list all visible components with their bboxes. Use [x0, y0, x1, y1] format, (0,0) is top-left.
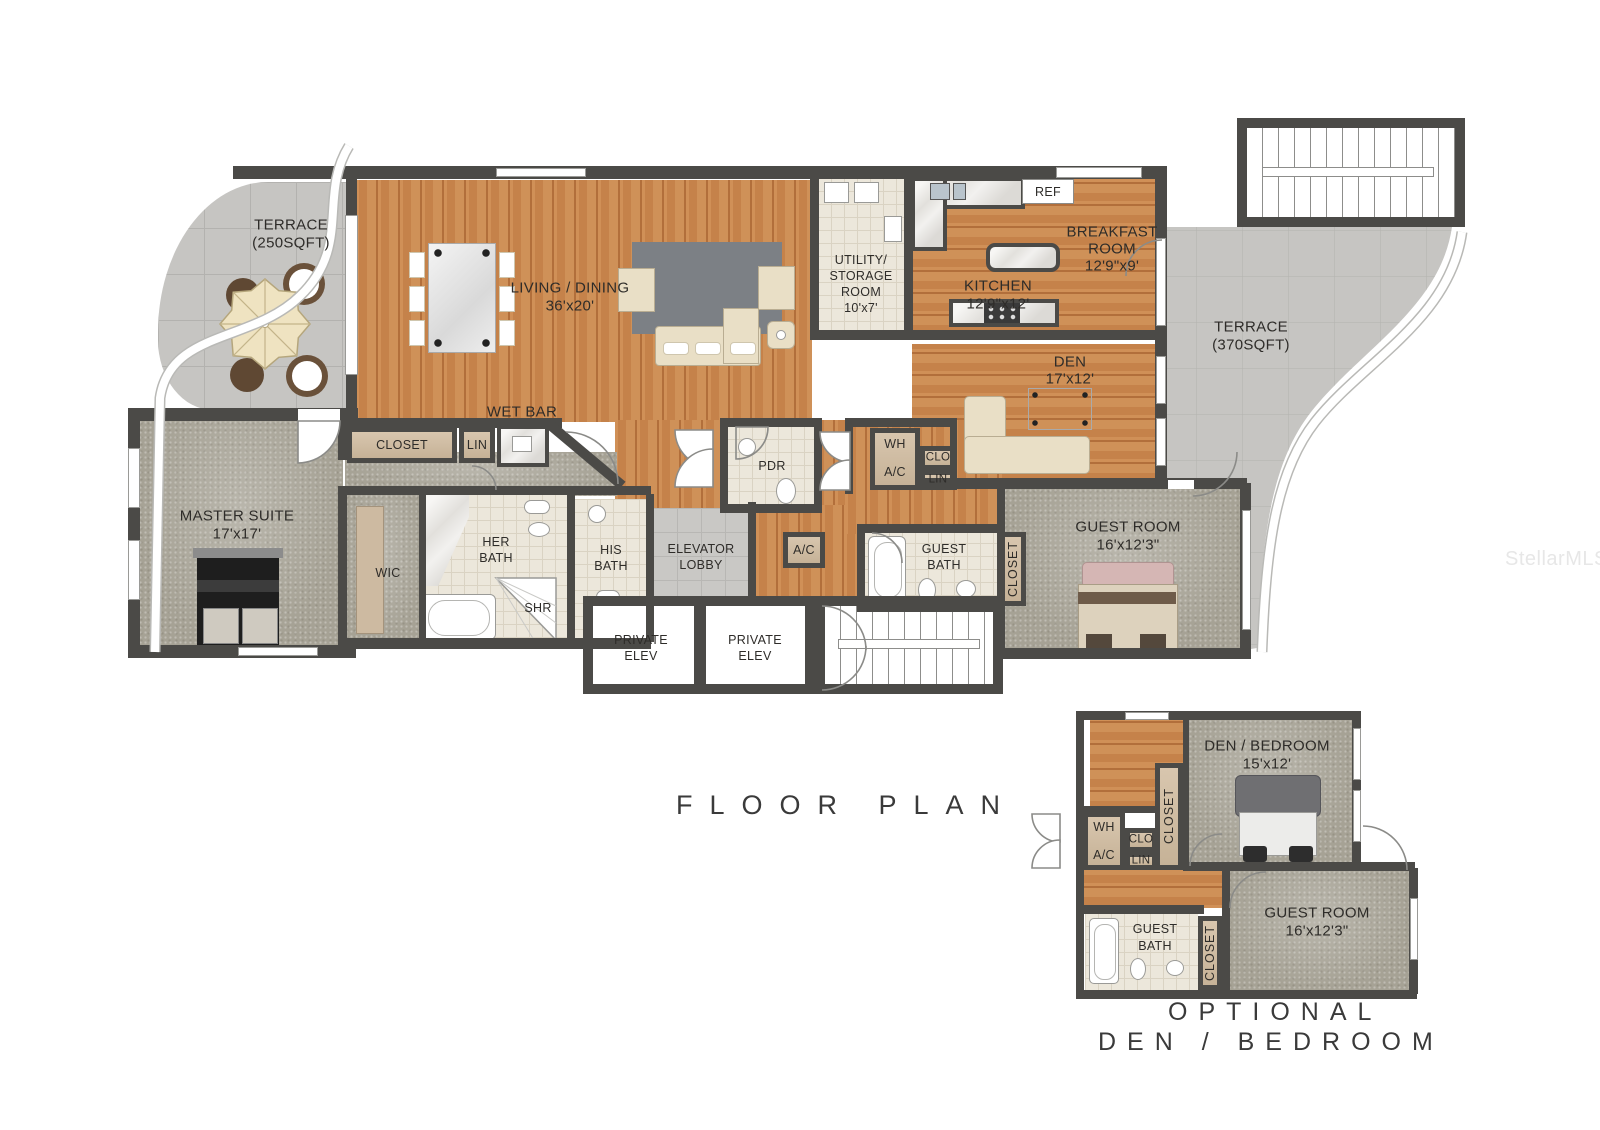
guest-room-size: 16'x12'3": [1097, 536, 1160, 553]
terrace-right-size: (370SQFT): [1212, 336, 1290, 353]
ac-lobby-label: A/C: [793, 543, 815, 557]
opt-wall-bath-right: [1222, 868, 1230, 992]
ac-label: A/C: [884, 465, 906, 479]
kitchen-island: [986, 243, 1060, 272]
kitchen-label: KITCHEN: [964, 277, 1032, 294]
ref-label: REF: [1035, 185, 1061, 199]
master-suite-size: 17'x17': [213, 525, 262, 542]
den-label: DEN: [1054, 353, 1087, 370]
opt-wall-wh-top: [1082, 806, 1160, 813]
window: [1156, 238, 1166, 326]
wall-living-utility: [810, 176, 819, 332]
opt-bed-foot: [1243, 846, 1267, 862]
armchair-right: [758, 266, 795, 310]
elevator-lobby-label-1: ELEVATOR: [667, 542, 734, 556]
window: [1242, 510, 1251, 630]
wall-utility-bottom: [810, 330, 1155, 340]
utility-label-1: UTILITY/: [835, 253, 887, 267]
window: [1156, 418, 1166, 466]
his-bath-label-2: BATH: [594, 559, 628, 573]
breakfast-label-2: ROOM: [1088, 240, 1136, 257]
dryer-icon: [854, 182, 879, 203]
opt-wall-den-left: [1183, 719, 1189, 865]
floor-plan-canvas: TERRACE (250SQFT) LIVING / DINING 36'x20…: [0, 0, 1600, 1130]
opt-clo-label: CLO: [1129, 833, 1154, 846]
opt-bed-pillows: [1235, 775, 1321, 817]
opt-closet-top-label: CLOSET: [1162, 788, 1176, 844]
sofa-pillow: [663, 342, 689, 355]
breakfast-size: 12'9"x9': [1085, 257, 1139, 274]
opt-guest-room-label: GUEST ROOM: [1264, 904, 1369, 921]
opt-wall-den-bottom: [1183, 862, 1415, 871]
wall-master-wic: [338, 486, 347, 649]
staircase-top-right-rail: [1262, 167, 1434, 177]
terrace-right-label: TERRACE: [1214, 318, 1288, 335]
window: [1353, 790, 1361, 842]
window: [1056, 167, 1142, 178]
opt-lin-label: LIN: [1132, 854, 1151, 867]
window: [1125, 712, 1169, 720]
washer-icon: [824, 182, 849, 203]
kitchen-sink-icon: [930, 183, 950, 200]
wall-pdr-right: [814, 418, 822, 513]
utility-label-3: ROOM: [841, 285, 881, 299]
opt-guest-room-size: 16'x12'3": [1286, 922, 1349, 939]
floor-plan-title: FLOOR PLAN: [676, 790, 1017, 821]
opt-bed-foot: [1289, 846, 1313, 862]
wall-terrace-living-stub: [346, 179, 357, 215]
guest-bath-label-2: BATH: [927, 558, 961, 572]
wh-label: WH: [884, 437, 905, 451]
her-bath-label-2: BATH: [479, 551, 513, 565]
master-bed-pillow: [203, 608, 239, 644]
opt-guest-bath-label-2: BATH: [1138, 939, 1172, 953]
window: [1410, 898, 1418, 960]
terrace-left-label: TERRACE: [254, 216, 328, 233]
pdr-label: PDR: [758, 459, 785, 473]
optional-title-line2: DEN / BEDROOM: [1098, 1028, 1444, 1057]
opt-guest-bath-label-1: GUEST: [1133, 922, 1178, 936]
private-elev-left-label-1: PRIVATE: [614, 633, 668, 647]
elevator-divider-wall: [694, 606, 706, 684]
wall-clo-right: [950, 427, 957, 490]
dining-chair: [499, 252, 515, 278]
utility-sink-icon: [884, 216, 902, 242]
shr-label: SHR: [524, 601, 551, 615]
wall-her-his-bath: [567, 494, 575, 642]
wall-pdr-top: [720, 418, 822, 427]
wall-hall-bath-top: [338, 486, 651, 495]
wall-guestbath-top: [857, 524, 1005, 533]
wet-bar-sink-icon: [512, 436, 532, 452]
window: [345, 215, 358, 375]
dining-chair: [409, 320, 425, 346]
master-suite-label: MASTER SUITE: [180, 507, 294, 524]
her-bath-label-1: HER: [482, 535, 509, 549]
umbrella-icon: [218, 277, 312, 371]
master-bed-headboard: [193, 548, 283, 558]
wall-wh-top: [845, 418, 957, 427]
window: [1156, 356, 1166, 404]
wall-master-left: [128, 408, 140, 658]
pdr-toilet-icon: [776, 478, 796, 504]
door-gap: [298, 409, 340, 421]
optional-title-line1: OPTIONAL: [1168, 998, 1382, 1027]
dining-table-corner-dots: [434, 249, 490, 347]
sofa-pillow: [695, 342, 721, 355]
private-elev-left-label-2: ELEV: [624, 649, 657, 663]
terrace-left-size: (250SQFT): [252, 234, 330, 251]
kitchen-sink-icon-2: [953, 183, 966, 200]
wall-guestbath-bottom: [857, 604, 1005, 612]
side-table-dot: [776, 330, 786, 340]
wic-label: WIC: [375, 566, 400, 580]
wall-lobby-right: [748, 502, 756, 598]
his-sink-icon: [588, 505, 606, 523]
dining-chair: [409, 252, 425, 278]
opt-hall-wood-bottom: [1083, 868, 1227, 908]
living-dining-label: LIVING / DINING: [511, 279, 630, 296]
opt-den-bedroom-size: 15'x12': [1243, 755, 1292, 772]
kitchen-size: 12'9"x12': [967, 295, 1030, 312]
lin-label: LIN: [929, 473, 948, 486]
wall-guestroom-bottom: [997, 648, 1247, 659]
utility-size: 10'x7': [844, 301, 878, 315]
private-elev-right-label-1: PRIVATE: [728, 633, 782, 647]
staircase-bottom-rail: [838, 639, 980, 649]
window: [238, 647, 318, 656]
window: [1353, 728, 1361, 780]
window: [128, 448, 140, 508]
opt-hall-wood-mid: [1090, 765, 1155, 812]
opt-wall-bath-top: [1082, 905, 1204, 914]
master-bed-pillow: [242, 608, 278, 644]
wall-guestroom-left: [997, 486, 1005, 659]
dining-chair: [499, 320, 515, 346]
dining-chair: [409, 286, 425, 312]
clo-label: CLO: [926, 451, 951, 464]
opt-wh-label: WH: [1093, 820, 1114, 834]
wall-hisbath-lobby: [646, 494, 654, 642]
opt-ac-label: A/C: [1093, 848, 1115, 862]
living-dining-size: 36'x20': [546, 297, 595, 314]
guest-bed-stripe: [1078, 592, 1176, 604]
his-bath-label-1: HIS: [600, 543, 622, 557]
wall-guestbath-left: [857, 524, 865, 612]
guest-closet-label: CLOSET: [1006, 541, 1020, 597]
door-gap: [1168, 480, 1194, 489]
guest-bath-label-1: GUEST: [922, 542, 967, 556]
sofa-chaise: [723, 308, 759, 364]
wall-pdr-bottom: [720, 504, 822, 513]
opt-hall-wood-top: [1090, 719, 1183, 765]
sofa-pillow: [730, 342, 756, 355]
wall-top: [233, 166, 1155, 179]
her-toilet-icon: [524, 500, 550, 514]
her-sink-icon: [528, 522, 550, 537]
den-coffee-table: [1028, 388, 1092, 430]
watermark: StellarMLS: [1505, 548, 1600, 571]
hall-lin-label: LIN: [467, 438, 487, 452]
guest-tub-basin: [874, 542, 902, 598]
pdr-sink-icon: [738, 438, 756, 456]
window: [496, 168, 586, 177]
opt-guest-toilet-icon: [1130, 958, 1146, 980]
hall-closet-label: CLOSET: [376, 438, 428, 452]
opt-wall-left: [1076, 711, 1084, 998]
wet-bar-label: WET BAR: [487, 403, 557, 420]
her-bath-tub-basin: [428, 600, 490, 636]
master-bed-fold: [197, 580, 279, 592]
opt-closet-bottom-label: CLOSET: [1203, 925, 1217, 981]
private-elev-right-label-2: ELEV: [738, 649, 771, 663]
utility-label-2: STORAGE: [830, 269, 893, 283]
wall-baths-bottom: [338, 638, 651, 649]
breakfast-label-1: BREAKFAST: [1066, 223, 1157, 240]
den-size: 17'x12': [1046, 370, 1095, 387]
wall-den-bottom: [925, 478, 1247, 489]
guest-room-label: GUEST ROOM: [1075, 518, 1180, 535]
wall-pdr-left: [720, 418, 728, 513]
elevator-lobby-label-2: LOBBY: [679, 558, 722, 572]
wall-utility-kitchen: [904, 176, 913, 336]
wall-wh-left: [845, 418, 853, 494]
window: [128, 540, 140, 600]
opt-guest-tub-basin: [1094, 924, 1116, 980]
opt-den-bedroom-label: DEN / BEDROOM: [1204, 737, 1330, 754]
opt-wall-top: [1076, 711, 1358, 720]
wall-wic-herbath: [419, 494, 426, 642]
opt-guest-sink-icon: [1166, 960, 1184, 976]
den-sofa-horizontal: [964, 436, 1090, 474]
